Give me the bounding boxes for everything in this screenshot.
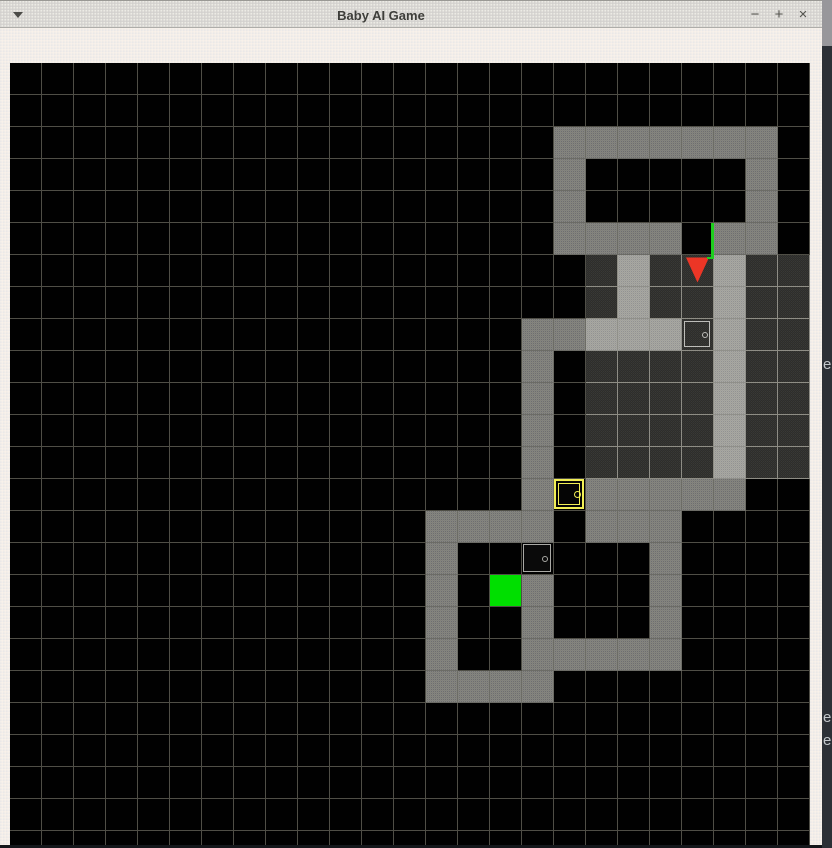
floor-cell [42, 415, 74, 447]
floor-cell [234, 383, 266, 415]
floor-cell [458, 191, 490, 223]
floor-cell [298, 511, 330, 543]
floor-cell [426, 767, 458, 799]
floor-cell [10, 639, 42, 671]
wall-cell [714, 479, 746, 511]
floor-cell [138, 127, 170, 159]
floor-cell [170, 255, 202, 287]
floor-cell [330, 639, 362, 671]
grey-door-cell [682, 319, 714, 351]
floor-cell [10, 479, 42, 511]
close-button[interactable]: × [796, 1, 810, 29]
floor-cell [266, 511, 298, 543]
floor-cell [234, 127, 266, 159]
floor-cell [42, 479, 74, 511]
floor-cell [138, 191, 170, 223]
floor-cell [234, 479, 266, 511]
floor-cell [74, 63, 106, 95]
floor-cell [330, 383, 362, 415]
floor-cell [266, 543, 298, 575]
floor-cell [298, 191, 330, 223]
floor-cell [42, 255, 74, 287]
floor-cell [618, 95, 650, 127]
floor-cell [586, 703, 618, 735]
floor-cell [234, 735, 266, 767]
wall-cell [714, 223, 746, 255]
floor-cell [394, 159, 426, 191]
floor-cell [778, 191, 810, 223]
floor-cell [330, 127, 362, 159]
floor-cell [362, 799, 394, 831]
floor-cell [74, 575, 106, 607]
minimize-button[interactable]: − [748, 1, 762, 29]
floor-cell [618, 799, 650, 831]
floor-cell [426, 415, 458, 447]
floor-cell [234, 575, 266, 607]
visible-floor-cell [618, 383, 650, 415]
visible-wall-cell [650, 319, 682, 351]
floor-cell [42, 95, 74, 127]
floor-cell [682, 639, 714, 671]
floor-cell [138, 383, 170, 415]
floor-cell [490, 319, 522, 351]
floor-cell [42, 319, 74, 351]
open-green-door-cell [682, 223, 714, 255]
floor-cell [746, 607, 778, 639]
floor-cell [298, 95, 330, 127]
floor-cell [202, 671, 234, 703]
floor-cell [74, 351, 106, 383]
floor-cell [650, 191, 682, 223]
floor-cell [10, 287, 42, 319]
floor-cell [170, 319, 202, 351]
visible-floor-cell [746, 287, 778, 319]
floor-cell [10, 383, 42, 415]
floor-cell [586, 735, 618, 767]
floor-cell [106, 255, 138, 287]
floor-cell [330, 223, 362, 255]
floor-cell [234, 543, 266, 575]
floor-cell [458, 287, 490, 319]
floor-cell [266, 767, 298, 799]
floor-cell [106, 63, 138, 95]
floor-cell [170, 63, 202, 95]
floor-cell [362, 703, 394, 735]
floor-cell [74, 799, 106, 831]
floor-cell [650, 767, 682, 799]
floor-cell [74, 287, 106, 319]
floor-cell [394, 671, 426, 703]
floor-cell [298, 767, 330, 799]
floor-cell [362, 639, 394, 671]
floor-cell [394, 511, 426, 543]
floor-cell [746, 767, 778, 799]
floor-cell [458, 479, 490, 511]
floor-cell [778, 159, 810, 191]
floor-cell [138, 703, 170, 735]
floor-cell [266, 287, 298, 319]
floor-cell [330, 767, 362, 799]
floor-cell [202, 703, 234, 735]
floor-cell [170, 287, 202, 319]
floor-cell [362, 607, 394, 639]
floor-cell [106, 383, 138, 415]
floor-cell [618, 671, 650, 703]
wall-cell [746, 191, 778, 223]
floor-cell [170, 511, 202, 543]
floor-cell [458, 575, 490, 607]
floor-cell [490, 735, 522, 767]
wall-cell [682, 479, 714, 511]
floor-cell [426, 255, 458, 287]
floor-cell [170, 127, 202, 159]
floor-cell [778, 639, 810, 671]
floor-cell [74, 607, 106, 639]
floor-cell [106, 735, 138, 767]
floor-cell [522, 255, 554, 287]
floor-cell [554, 607, 586, 639]
wall-cell [586, 639, 618, 671]
wall-cell [618, 639, 650, 671]
visible-wall-cell [714, 383, 746, 415]
floor-cell [170, 95, 202, 127]
floor-cell [74, 127, 106, 159]
floor-cell [394, 767, 426, 799]
floor-cell [490, 479, 522, 511]
floor-cell [778, 671, 810, 703]
floor-cell [42, 511, 74, 543]
floor-cell [682, 799, 714, 831]
wall-cell [554, 127, 586, 159]
floor-cell [746, 799, 778, 831]
floor-cell [74, 383, 106, 415]
floor-cell [554, 767, 586, 799]
floor-cell [682, 575, 714, 607]
floor-cell [298, 159, 330, 191]
visible-floor-cell [682, 415, 714, 447]
floor-cell [554, 63, 586, 95]
wall-cell [746, 223, 778, 255]
visible-floor-cell [618, 447, 650, 479]
floor-cell [554, 255, 586, 287]
floor-cell [170, 351, 202, 383]
floor-cell [586, 799, 618, 831]
wall-cell [554, 223, 586, 255]
floor-cell [138, 159, 170, 191]
floor-cell [778, 767, 810, 799]
wall-cell [746, 159, 778, 191]
floor-cell [362, 735, 394, 767]
floor-cell [106, 703, 138, 735]
floor-cell [714, 95, 746, 127]
floor-cell [202, 319, 234, 351]
floor-cell [426, 63, 458, 95]
floor-cell [394, 479, 426, 511]
visible-floor-cell [778, 255, 810, 287]
floor-cell [554, 415, 586, 447]
visible-floor-cell [778, 319, 810, 351]
floor-cell [74, 543, 106, 575]
visible-floor-cell [746, 255, 778, 287]
visible-floor-cell [746, 415, 778, 447]
floor-cell [554, 735, 586, 767]
goal-cell [490, 575, 522, 607]
floor-cell [682, 543, 714, 575]
floor-cell [522, 63, 554, 95]
floor-cell [778, 703, 810, 735]
floor-cell [330, 735, 362, 767]
visible-floor-cell [682, 447, 714, 479]
floor-cell [266, 415, 298, 447]
floor-cell [266, 191, 298, 223]
floor-cell [554, 351, 586, 383]
floor-cell [170, 607, 202, 639]
floor-cell [330, 543, 362, 575]
titlebar[interactable]: Baby AI Game − + × [0, 0, 822, 28]
floor-cell [458, 639, 490, 671]
floor-cell [234, 287, 266, 319]
background-text: e [823, 357, 831, 372]
window-body [0, 28, 822, 845]
floor-cell [330, 671, 362, 703]
floor-cell [10, 319, 42, 351]
floor-cell [458, 255, 490, 287]
floor-cell [298, 63, 330, 95]
floor-cell [10, 671, 42, 703]
floor-cell [74, 255, 106, 287]
floor-cell [42, 351, 74, 383]
floor-cell [458, 95, 490, 127]
floor-cell [234, 159, 266, 191]
floor-cell [74, 95, 106, 127]
floor-cell [778, 735, 810, 767]
floor-cell [138, 287, 170, 319]
floor-cell [778, 63, 810, 95]
floor-cell [426, 127, 458, 159]
wall-cell [426, 575, 458, 607]
floor-cell [490, 351, 522, 383]
wall-cell [650, 511, 682, 543]
floor-cell [170, 799, 202, 831]
floor-cell [170, 223, 202, 255]
floor-cell [714, 799, 746, 831]
wall-cell [554, 159, 586, 191]
floor-cell [682, 63, 714, 95]
visible-floor-cell [618, 415, 650, 447]
screen: e e e Baby AI Game − + × [0, 0, 832, 848]
floor-cell [682, 607, 714, 639]
open-green-door [711, 223, 714, 259]
floor-cell [394, 639, 426, 671]
floor-cell [362, 479, 394, 511]
floor-cell [458, 223, 490, 255]
wall-cell [618, 479, 650, 511]
floor-cell [554, 447, 586, 479]
floor-cell [106, 159, 138, 191]
floor-cell [426, 383, 458, 415]
floor-cell [362, 767, 394, 799]
floor-cell [170, 639, 202, 671]
floor-cell [42, 639, 74, 671]
floor-cell [650, 799, 682, 831]
floor-cell [394, 63, 426, 95]
floor-cell [106, 319, 138, 351]
floor-cell [10, 575, 42, 607]
floor-cell [138, 223, 170, 255]
floor-cell [778, 479, 810, 511]
floor-cell [714, 575, 746, 607]
wall-cell [554, 191, 586, 223]
floor-cell [298, 319, 330, 351]
grid-canvas[interactable] [10, 63, 810, 848]
floor-cell [650, 703, 682, 735]
floor-cell [554, 287, 586, 319]
wall-cell [586, 479, 618, 511]
floor-cell [490, 287, 522, 319]
floor-cell [746, 639, 778, 671]
floor-cell [42, 543, 74, 575]
floor-cell [298, 127, 330, 159]
floor-cell [394, 191, 426, 223]
floor-cell [490, 767, 522, 799]
wall-cell [650, 479, 682, 511]
wall-cell [618, 511, 650, 543]
floor-cell [266, 799, 298, 831]
floor-cell [202, 223, 234, 255]
visible-floor-cell [682, 351, 714, 383]
floor-cell [266, 639, 298, 671]
floor-cell [714, 191, 746, 223]
floor-cell [106, 607, 138, 639]
floor-cell [42, 447, 74, 479]
floor-cell [138, 479, 170, 511]
floor-cell [330, 703, 362, 735]
visible-floor-cell [650, 383, 682, 415]
floor-cell [138, 767, 170, 799]
floor-cell [266, 703, 298, 735]
floor-cell [106, 95, 138, 127]
floor-cell [426, 703, 458, 735]
floor-cell [330, 415, 362, 447]
visible-wall-cell [618, 287, 650, 319]
wall-cell [522, 511, 554, 543]
wall-cell [554, 319, 586, 351]
floor-cell [714, 159, 746, 191]
floor-cell [362, 287, 394, 319]
floor-cell [10, 607, 42, 639]
floor-cell [618, 159, 650, 191]
floor-cell [234, 639, 266, 671]
floor-cell [266, 575, 298, 607]
floor-cell [266, 255, 298, 287]
floor-cell [426, 191, 458, 223]
floor-cell [554, 671, 586, 703]
floor-cell [586, 191, 618, 223]
floor-cell [394, 383, 426, 415]
floor-cell [170, 191, 202, 223]
floor-cell [202, 735, 234, 767]
floor-cell [74, 735, 106, 767]
floor-cell [778, 223, 810, 255]
floor-cell [298, 703, 330, 735]
wall-cell [650, 575, 682, 607]
floor-cell [138, 735, 170, 767]
visible-floor-cell [778, 287, 810, 319]
floor-cell [10, 735, 42, 767]
floor-cell [714, 543, 746, 575]
floor-cell [42, 575, 74, 607]
floor-cell [298, 447, 330, 479]
floor-cell [458, 799, 490, 831]
floor-cell [362, 191, 394, 223]
floor-cell [746, 543, 778, 575]
floor-cell [266, 351, 298, 383]
maximize-button[interactable]: + [772, 1, 786, 29]
visible-floor-cell [650, 415, 682, 447]
floor-cell [138, 447, 170, 479]
visible-floor-cell [586, 415, 618, 447]
floor-cell [330, 511, 362, 543]
floor-cell [362, 415, 394, 447]
floor-cell [10, 543, 42, 575]
floor-cell [362, 543, 394, 575]
floor-cell [330, 607, 362, 639]
floor-cell [458, 607, 490, 639]
floor-cell [234, 799, 266, 831]
floor-cell [106, 767, 138, 799]
floor-cell [618, 767, 650, 799]
wall-cell [650, 543, 682, 575]
floor-cell [362, 511, 394, 543]
floor-cell [714, 767, 746, 799]
floor-cell [10, 255, 42, 287]
floor-cell [522, 735, 554, 767]
wall-cell [490, 671, 522, 703]
floor-cell [10, 447, 42, 479]
floor-cell [202, 479, 234, 511]
visible-wall-cell [714, 415, 746, 447]
floor-cell [458, 735, 490, 767]
floor-cell [618, 575, 650, 607]
visible-wall-cell [586, 319, 618, 351]
wall-cell [586, 127, 618, 159]
floor-cell [586, 543, 618, 575]
floor-cell [298, 639, 330, 671]
yellow-door-cell [554, 479, 586, 511]
floor-cell [42, 703, 74, 735]
floor-cell [362, 159, 394, 191]
floor-cell [138, 415, 170, 447]
floor-cell [106, 223, 138, 255]
floor-cell [42, 287, 74, 319]
floor-cell [394, 735, 426, 767]
floor-cell [298, 735, 330, 767]
floor-cell [42, 159, 74, 191]
floor-cell [362, 127, 394, 159]
floor-cell [682, 95, 714, 127]
floor-cell [234, 511, 266, 543]
floor-cell [554, 575, 586, 607]
floor-cell [266, 63, 298, 95]
floor-cell [330, 95, 362, 127]
visible-wall-cell [714, 319, 746, 351]
wall-cell [458, 511, 490, 543]
floor-cell [234, 223, 266, 255]
floor-cell [106, 639, 138, 671]
floor-cell [298, 607, 330, 639]
visible-floor-cell [650, 255, 682, 287]
floor-cell [298, 351, 330, 383]
